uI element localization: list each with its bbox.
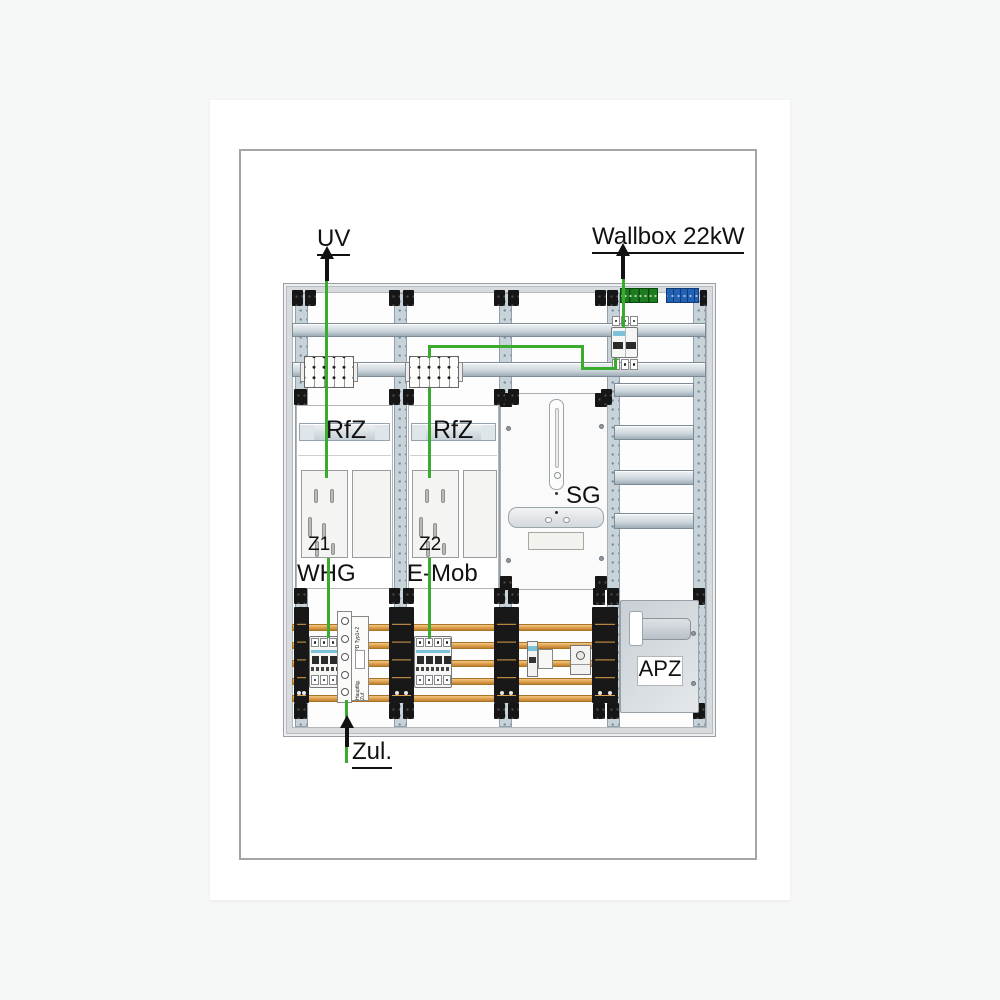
mounting-block [305,290,316,306]
mounting-block [607,588,619,605]
page-background: RfZ Z1 WHG RfZ Z2 E-Mob SG [0,0,1000,1000]
terminal-block-2 [409,356,459,388]
mounting-block [601,389,612,405]
terminal [311,638,319,647]
terminal [416,638,424,647]
blank-plate [352,470,391,558]
sg-label: SG [566,484,601,508]
terminal-block-1 [304,356,354,388]
sg-dot [555,511,558,514]
sg-window [528,532,584,550]
feed-hole [341,617,349,625]
din-rail [614,383,694,397]
apz-handle-tab [629,611,643,646]
terminal [630,359,638,370]
breaker-divider [625,328,626,357]
terminal [320,675,328,685]
din-rail [614,425,694,440]
wire-z2-down [428,388,431,478]
feed-hole [341,671,349,679]
feed-hole [341,653,349,661]
busbar-device-fuse [527,641,553,677]
mounting-block [494,588,505,604]
field-divider [410,455,497,456]
busbar-device-clamp [570,645,591,675]
meter-plate-z2: Z2 [412,470,459,558]
arrow-shaft [325,258,329,281]
green-terminal-strip [620,288,658,303]
meter-plate-z1: Z1 [301,470,348,558]
horizontal-busbar [292,323,706,337]
mounting-block [700,290,707,306]
terminal [311,675,319,685]
screw [506,558,511,563]
sg-hole [545,517,552,523]
screw [506,426,511,431]
terminal [443,638,451,647]
wire-emob [428,558,431,638]
wire-whg [327,558,330,638]
meter-id-label: Z2 [419,534,441,556]
breaker-toggle [417,656,424,664]
mounting-block [294,703,307,719]
apz-label: APZ [639,656,682,681]
mounting-block [403,290,414,306]
mounting-block [494,703,505,719]
breaker-group-emob [414,636,452,688]
terminal [416,675,424,685]
mounting-block [403,588,414,604]
busbar-holder [592,607,618,703]
device-stripe [528,646,537,651]
apz-label-box: APZ [637,656,683,686]
feed-hole [341,688,349,696]
busbar-holder [494,607,519,703]
breaker-toggle [330,656,337,664]
clamp-hole [576,651,585,660]
mounting-block [403,389,414,405]
blue-terminal-strip [666,288,699,303]
rfz-label-2: RfZ [433,418,473,443]
wire-run-v2 [614,358,617,370]
screw [599,424,604,429]
mounting-block [292,290,303,306]
meter-slot [314,489,318,503]
mounting-block [593,588,605,605]
breaker-toggle [312,656,319,664]
blank-plate [463,470,497,558]
breaker-toggle [626,342,636,349]
mounting-block [494,290,505,306]
wire-run-h1 [428,345,584,348]
sg-hole [563,517,570,523]
terminal [329,675,337,685]
terminal [630,316,638,326]
mounting-block [508,588,519,604]
mounting-block [294,389,307,405]
terminal [434,675,442,685]
meter-slot [425,489,429,503]
arrow-shaft [621,255,625,279]
breaker-toggle [321,656,328,664]
breaker-text-band [416,667,450,671]
wire-run-h2 [581,367,617,370]
terminal [621,359,629,370]
mounting-block [403,703,414,719]
meter-slot [330,489,334,503]
sg-slot-bar [549,399,564,490]
mounting-block [494,389,505,405]
mounting-block [294,588,307,604]
breaker-stripe [416,650,450,653]
feed-hole [341,635,349,643]
mounting-block [389,389,400,405]
label-zul: Zul. [352,740,392,769]
terminal [612,316,620,326]
mounting-block [389,588,400,604]
busbar-holder [294,607,309,703]
meter-slot [442,543,446,555]
label-wallbox: Wallbox 22kW [592,225,744,254]
terminal [320,638,328,647]
feed-terminal-window [355,650,365,669]
feed-terminal-strip [337,611,352,703]
mounting-block [508,703,519,719]
mounting-block [595,290,606,306]
arrow-shaft [345,727,349,747]
din-rail [614,513,694,529]
terminal [425,675,433,685]
terminal [329,638,337,647]
din-rail [614,470,694,485]
wallbox-breaker [611,327,638,358]
circuit-label-emob: E-Mob [407,562,478,586]
meter-slot [441,489,445,503]
sg-slot [555,408,559,468]
mounting-block [389,703,400,719]
mounting-block [389,290,400,306]
terminal [434,638,442,647]
mounting-block [593,703,605,719]
mounting-block [508,389,519,405]
breaker-toggle [613,342,623,349]
wire-uv [325,266,328,478]
mounting-block [607,703,619,719]
breaker-stripe [613,331,625,336]
apz-panel: APZ [620,600,699,713]
feed-terminal-body: SPD Typ1+2 Hauptltg. Zuf. [351,616,369,701]
busbar-holder [389,607,414,703]
device-toggle [529,657,536,663]
meter-slot [331,543,335,555]
mounting-block [508,290,519,306]
screw [691,681,696,686]
sg-slot-hole [554,472,561,479]
screw [599,556,604,561]
breaker-toggle [444,656,451,664]
device-side [538,649,553,669]
label-uv: UV [317,227,350,256]
rfz-label-1: RfZ [326,418,366,443]
field-divider [298,455,391,456]
meter-id-label: Z1 [308,534,330,556]
breaker-toggle [426,656,433,664]
sg-dot [555,492,558,495]
feed-terminal-label-bottom: Hauptltg. Zuf. [356,672,366,700]
breaker-toggle [435,656,442,664]
sg-handle-bar [508,507,604,528]
mounting-block [607,290,618,306]
terminal [443,675,451,685]
terminal [425,638,433,647]
screw [691,631,696,636]
clamp-line [571,664,590,665]
